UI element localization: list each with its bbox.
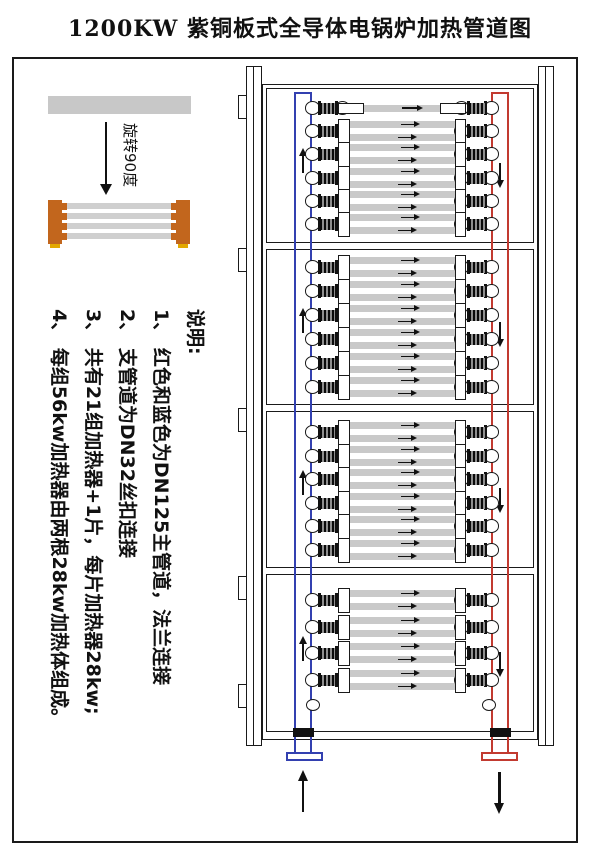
flow-arrow-shaft xyxy=(302,315,304,333)
flow-arrow-head xyxy=(411,390,417,396)
flow-arrow-shaft xyxy=(499,322,501,340)
flow-arrow-head xyxy=(411,459,417,465)
union-threaded-body xyxy=(469,286,485,297)
flow-arrow-head xyxy=(414,168,420,174)
flow-arrow-head xyxy=(411,342,417,348)
flow-arrow-shaft xyxy=(401,356,414,358)
flow-arrow-head xyxy=(411,227,417,233)
flow-arrow-shaft xyxy=(398,321,411,323)
flow-arrow-shaft xyxy=(401,217,414,219)
heater-plate xyxy=(338,538,350,563)
flow-arrow-shaft xyxy=(398,273,411,275)
heater-plate xyxy=(455,588,467,613)
heater-plate xyxy=(338,189,350,214)
union-threaded-body xyxy=(320,262,336,273)
flow-arrow-head xyxy=(411,204,417,210)
flow-arrow-head xyxy=(411,630,417,636)
flow-arrow-shaft xyxy=(499,652,501,670)
heater-plate xyxy=(338,668,350,693)
union-threaded-body xyxy=(320,498,336,509)
hinge-tab xyxy=(238,576,247,600)
hinge-tab xyxy=(238,248,247,272)
heater-plate xyxy=(338,491,350,516)
heater-plate xyxy=(455,538,467,563)
heater-plate xyxy=(455,119,467,144)
flow-arrow-shaft xyxy=(401,543,414,545)
flow-arrow-shaft xyxy=(398,686,411,688)
flow-arrow-shaft xyxy=(398,207,411,209)
flow-arrow-shaft xyxy=(398,462,411,464)
heater-plate xyxy=(455,303,467,328)
flow-arrow-shaft xyxy=(401,380,414,382)
union-threaded-body xyxy=(320,521,336,532)
flow-arrow-head xyxy=(414,590,420,596)
flow-arrow-head xyxy=(414,353,420,359)
red-main-pipe-right-line xyxy=(507,92,509,752)
union-threaded-body xyxy=(469,595,485,606)
flow-arrow-shaft xyxy=(398,485,411,487)
heater-plate xyxy=(338,641,350,666)
flow-arrow-shaft xyxy=(398,345,411,347)
flow-arrow-shaft xyxy=(401,646,414,648)
flow-arrow-head xyxy=(414,670,420,676)
union-threaded-body xyxy=(469,382,485,393)
hinge-tab xyxy=(238,684,247,708)
flow-arrow-head xyxy=(411,482,417,488)
union-threaded-body xyxy=(469,648,485,659)
flow-arrow-shaft xyxy=(398,160,411,162)
heater-plate xyxy=(338,327,350,352)
flow-arrow-head xyxy=(414,305,420,311)
flow-arrow-shaft xyxy=(398,633,411,635)
flow-arrow-shaft xyxy=(398,184,411,186)
flow-arrow-head xyxy=(414,643,420,649)
heater-plate xyxy=(455,255,467,280)
flow-arrow-shaft xyxy=(401,171,414,173)
flow-arrow-head xyxy=(414,121,420,127)
union-threaded-body xyxy=(320,474,336,485)
flow-arrow-head xyxy=(411,318,417,324)
heater-plate xyxy=(455,668,467,693)
heater-plate xyxy=(338,255,350,280)
flow-arrow-head xyxy=(411,656,417,662)
heater-plate xyxy=(338,303,350,328)
flow-arrow-head xyxy=(411,181,417,187)
flow-arrow-shaft xyxy=(401,449,414,451)
union-threaded-body xyxy=(469,521,485,532)
union-threaded-body xyxy=(320,675,336,686)
union-threaded-body xyxy=(320,310,336,321)
blue-main-pipe-left-line xyxy=(294,92,296,752)
union-threaded-body xyxy=(469,173,485,184)
heater-end-tube xyxy=(440,103,466,114)
flow-arrow-head xyxy=(411,435,417,441)
flow-arrow-head xyxy=(417,105,423,111)
union-threaded-body xyxy=(469,310,485,321)
flow-arrow-head xyxy=(414,257,420,263)
flow-arrow-shaft xyxy=(401,284,414,286)
heater-plate xyxy=(338,588,350,613)
heater-plate xyxy=(455,279,467,304)
union-threaded-body xyxy=(469,545,485,556)
union-threaded-body xyxy=(469,334,485,345)
flow-arrow-shaft xyxy=(398,438,411,440)
heater-plate xyxy=(455,514,467,539)
flow-arrow-head xyxy=(414,281,420,287)
heater-plate xyxy=(338,142,350,167)
union-threaded-body xyxy=(320,595,336,606)
flow-arrow-shaft xyxy=(398,230,411,232)
cabinet-post-left-inner-line xyxy=(253,66,254,746)
union-threaded-body xyxy=(469,149,485,160)
union-threaded-body xyxy=(320,451,336,462)
flow-arrow-shaft xyxy=(398,297,411,299)
flow-arrow-head xyxy=(411,603,417,609)
heater-plate xyxy=(455,444,467,469)
blue-inlet-flange xyxy=(286,752,323,761)
union-threaded-body xyxy=(469,262,485,273)
flow-arrow-head xyxy=(414,329,420,335)
union-threaded-body xyxy=(469,474,485,485)
flow-arrow-shaft xyxy=(401,472,414,474)
heater-plate xyxy=(338,615,350,640)
flow-arrow-shaft xyxy=(499,163,501,181)
flow-arrow-shaft xyxy=(401,593,414,595)
flow-arrow-head xyxy=(411,366,417,372)
flow-arrow-shaft xyxy=(398,509,411,511)
union-threaded-body xyxy=(469,451,485,462)
flow-arrow-head xyxy=(411,294,417,300)
heater-plate xyxy=(338,375,350,400)
union-threaded-body xyxy=(469,498,485,509)
heater-end-tube xyxy=(338,103,364,114)
heater-plate xyxy=(455,142,467,167)
flow-arrow-shaft xyxy=(401,425,414,427)
flow-arrow-head xyxy=(414,144,420,150)
flow-arrow-head xyxy=(414,191,420,197)
flow-arrow-shaft xyxy=(398,556,411,558)
union-threaded-body xyxy=(320,173,336,184)
flow-arrow-head xyxy=(414,617,420,623)
heater-plate xyxy=(338,467,350,492)
flow-arrow-shaft xyxy=(302,643,304,661)
union-threaded-body xyxy=(320,382,336,393)
flow-arrow-head xyxy=(411,506,417,512)
union-threaded-body xyxy=(469,675,485,686)
heater-plate xyxy=(455,467,467,492)
flow-arrow-head xyxy=(414,469,420,475)
flow-arrow-head xyxy=(411,157,417,163)
heater-plate xyxy=(338,420,350,445)
heater-plate xyxy=(455,212,467,237)
hinge-tab xyxy=(238,95,247,119)
hinge-tab xyxy=(238,408,247,432)
heater-plate xyxy=(455,615,467,640)
flow-arrow-shaft xyxy=(401,124,414,126)
red-pipe-frame-crossing xyxy=(490,728,511,737)
union-threaded-body xyxy=(320,196,336,207)
flow-arrow-head xyxy=(411,529,417,535)
flow-arrow-shaft xyxy=(398,532,411,534)
heater-plate xyxy=(338,212,350,237)
blue-main-pipe-top-cap xyxy=(294,92,312,94)
union-threaded-body xyxy=(469,103,485,114)
union-threaded-body xyxy=(320,648,336,659)
cabinet-post-right-inner-line xyxy=(545,66,546,746)
heater-plate xyxy=(338,166,350,191)
flow-arrow-shaft xyxy=(499,488,501,506)
union-threaded-body xyxy=(320,286,336,297)
flow-arrow-shaft xyxy=(401,260,414,262)
union-threaded-body xyxy=(320,545,336,556)
flow-arrow-shaft xyxy=(401,332,414,334)
pipe-end-cap xyxy=(306,699,320,711)
drawing-page: 1200KW 紫铜板式全导体电锅炉加热管道图 旋转90度 说明: 1、 红色和蓝… xyxy=(0,0,600,852)
flow-arrow-head xyxy=(414,493,420,499)
heater-plate xyxy=(338,119,350,144)
flow-arrow-head xyxy=(411,270,417,276)
heater-plate xyxy=(338,514,350,539)
red-main-pipe-top-cap xyxy=(491,92,509,94)
flow-arrow-shaft xyxy=(401,147,414,149)
heater-plate xyxy=(455,166,467,191)
union-threaded-body xyxy=(320,103,336,114)
flow-arrow-head xyxy=(411,553,417,559)
flow-arrow-shaft xyxy=(401,194,414,196)
union-threaded-body xyxy=(469,358,485,369)
blue-pipe-frame-crossing xyxy=(293,728,314,737)
flow-arrow-shaft xyxy=(401,496,414,498)
union-threaded-body xyxy=(320,622,336,633)
union-threaded-body xyxy=(320,149,336,160)
flow-arrow-shaft xyxy=(302,477,304,495)
flow-arrow-shaft xyxy=(401,308,414,310)
outlet-arrow-head xyxy=(494,803,504,814)
union-threaded-body xyxy=(469,219,485,230)
heater-plate xyxy=(338,351,350,376)
union-threaded-body xyxy=(469,196,485,207)
heater-plate xyxy=(455,351,467,376)
flow-arrow-shaft xyxy=(401,673,414,675)
flow-arrow-shaft xyxy=(401,519,414,521)
heater-plate xyxy=(455,491,467,516)
red-outlet-flange xyxy=(481,752,518,761)
flow-arrow-head xyxy=(414,214,420,220)
pipe-end-cap xyxy=(482,699,496,711)
flow-arrow-head xyxy=(414,377,420,383)
flow-arrow-head xyxy=(411,683,417,689)
flow-arrow-shaft xyxy=(401,620,414,622)
heater-plate xyxy=(455,641,467,666)
union-threaded-body xyxy=(320,427,336,438)
union-threaded-body xyxy=(469,427,485,438)
flow-arrow-shaft xyxy=(398,606,411,608)
heater-plate xyxy=(338,444,350,469)
flow-arrow-head xyxy=(414,422,420,428)
union-threaded-body xyxy=(320,334,336,345)
heater-plate xyxy=(338,279,350,304)
flow-arrow-head xyxy=(414,446,420,452)
flow-arrow-shaft xyxy=(402,107,417,109)
heater-plate xyxy=(455,375,467,400)
union-threaded-body xyxy=(469,622,485,633)
union-threaded-body xyxy=(320,219,336,230)
union-threaded-body xyxy=(320,358,336,369)
heater-plate xyxy=(455,189,467,214)
flow-arrow-shaft xyxy=(398,393,411,395)
flow-arrow-shaft xyxy=(398,659,411,661)
flow-arrow-head xyxy=(411,134,417,140)
flow-arrow-shaft xyxy=(398,369,411,371)
heater-plate xyxy=(455,420,467,445)
inlet-arrow-shaft xyxy=(302,780,304,812)
flow-arrow-shaft xyxy=(302,155,304,173)
flow-arrow-shaft xyxy=(398,137,411,139)
union-threaded-body xyxy=(320,126,336,137)
flow-arrow-head xyxy=(414,540,420,546)
boiler-cabinet xyxy=(0,0,600,852)
union-threaded-body xyxy=(469,126,485,137)
flow-arrow-head xyxy=(414,516,420,522)
outlet-arrow-shaft xyxy=(498,772,500,804)
heater-plate xyxy=(455,327,467,352)
